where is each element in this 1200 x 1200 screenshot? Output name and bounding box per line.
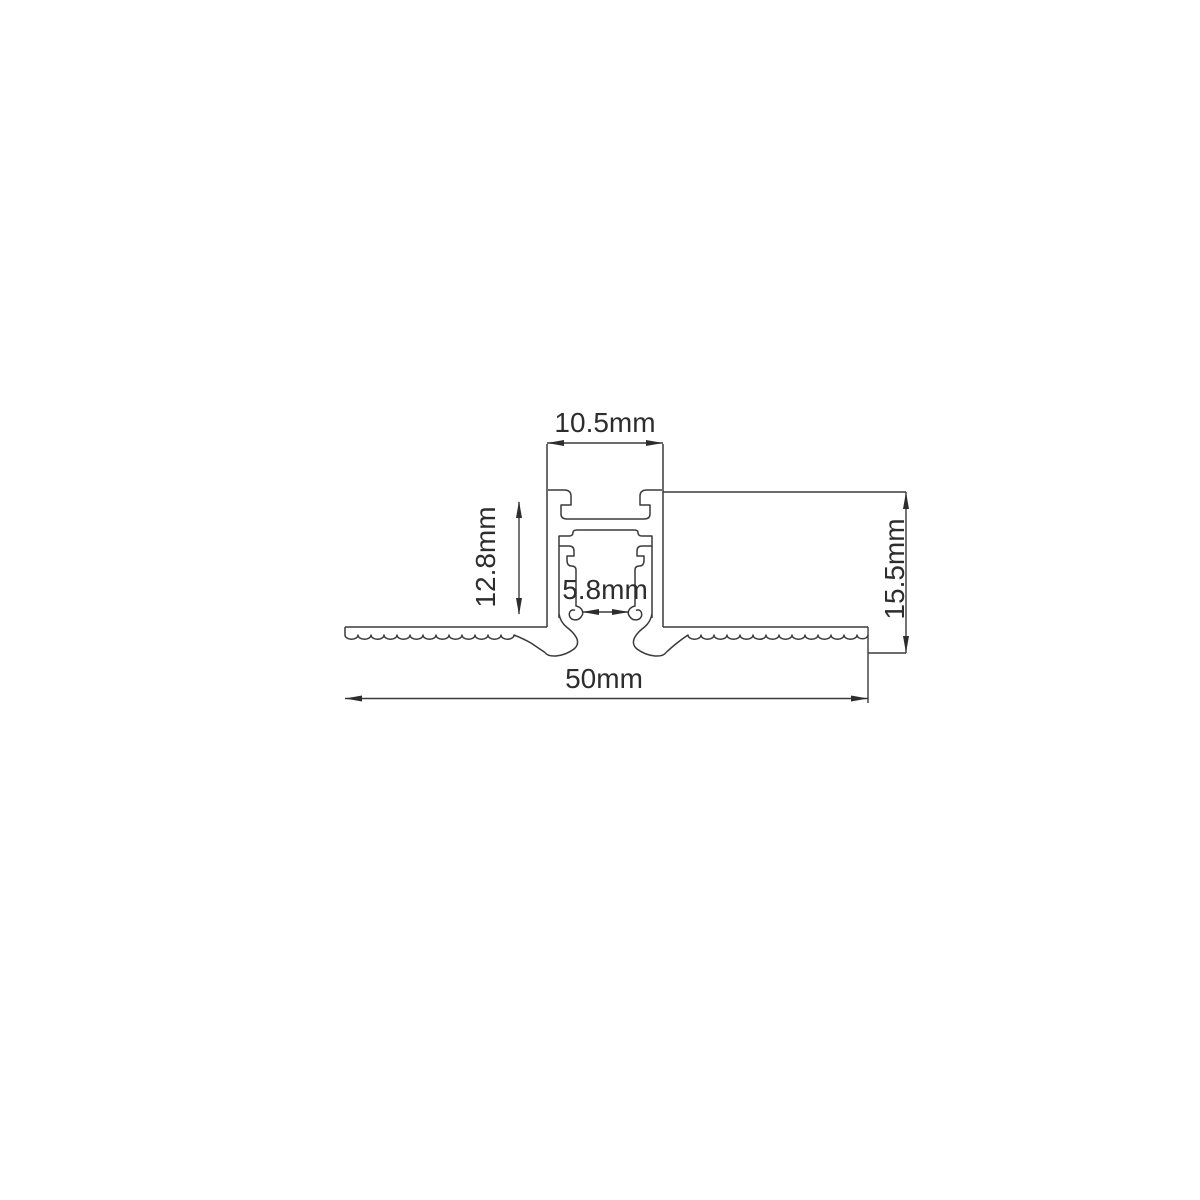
- right-foot-outline: [633, 614, 666, 656]
- dim-arrow-recess-depth-up: [516, 501, 522, 518]
- technical-drawing-page: 10.5mm 12.8mm 5.8mm 15.5mm 50mm: [0, 0, 1200, 1200]
- dim-label-recess-depth: 12.8mm: [470, 506, 501, 607]
- dim-arrow-recess-depth-down: [516, 598, 522, 615]
- dim-label-overall-depth: 15.5mm: [879, 518, 910, 619]
- right-wing-serrated-edge: [666, 635, 868, 653]
- dim-arrow-top-width-right: [646, 440, 663, 446]
- dim-arrow-overall-width-right: [851, 696, 868, 702]
- profile-cross-section-drawing: 10.5mm 12.8mm 5.8mm 15.5mm 50mm: [0, 0, 1200, 1200]
- dim-arrow-overall-depth-down: [903, 636, 909, 653]
- dimension-labels: 10.5mm 12.8mm 5.8mm 15.5mm 50mm: [470, 407, 910, 694]
- dim-label-overall-width: 50mm: [565, 663, 643, 694]
- dim-arrow-overall-depth-up: [903, 492, 909, 509]
- dim-label-top-width: 10.5mm: [554, 407, 655, 438]
- dim-label-slot-width: 5.8mm: [562, 574, 648, 605]
- left-wing-serrated-edge: [345, 627, 545, 653]
- dim-arrow-overall-width-left: [345, 696, 362, 702]
- dim-arrow-top-width-left: [547, 440, 564, 446]
- dim-arrow-slot-width-left: [582, 609, 599, 615]
- left-foot-outline: [545, 614, 578, 656]
- dim-arrow-slot-width-right: [612, 609, 629, 615]
- top-channel-inner-contour: [548, 490, 662, 519]
